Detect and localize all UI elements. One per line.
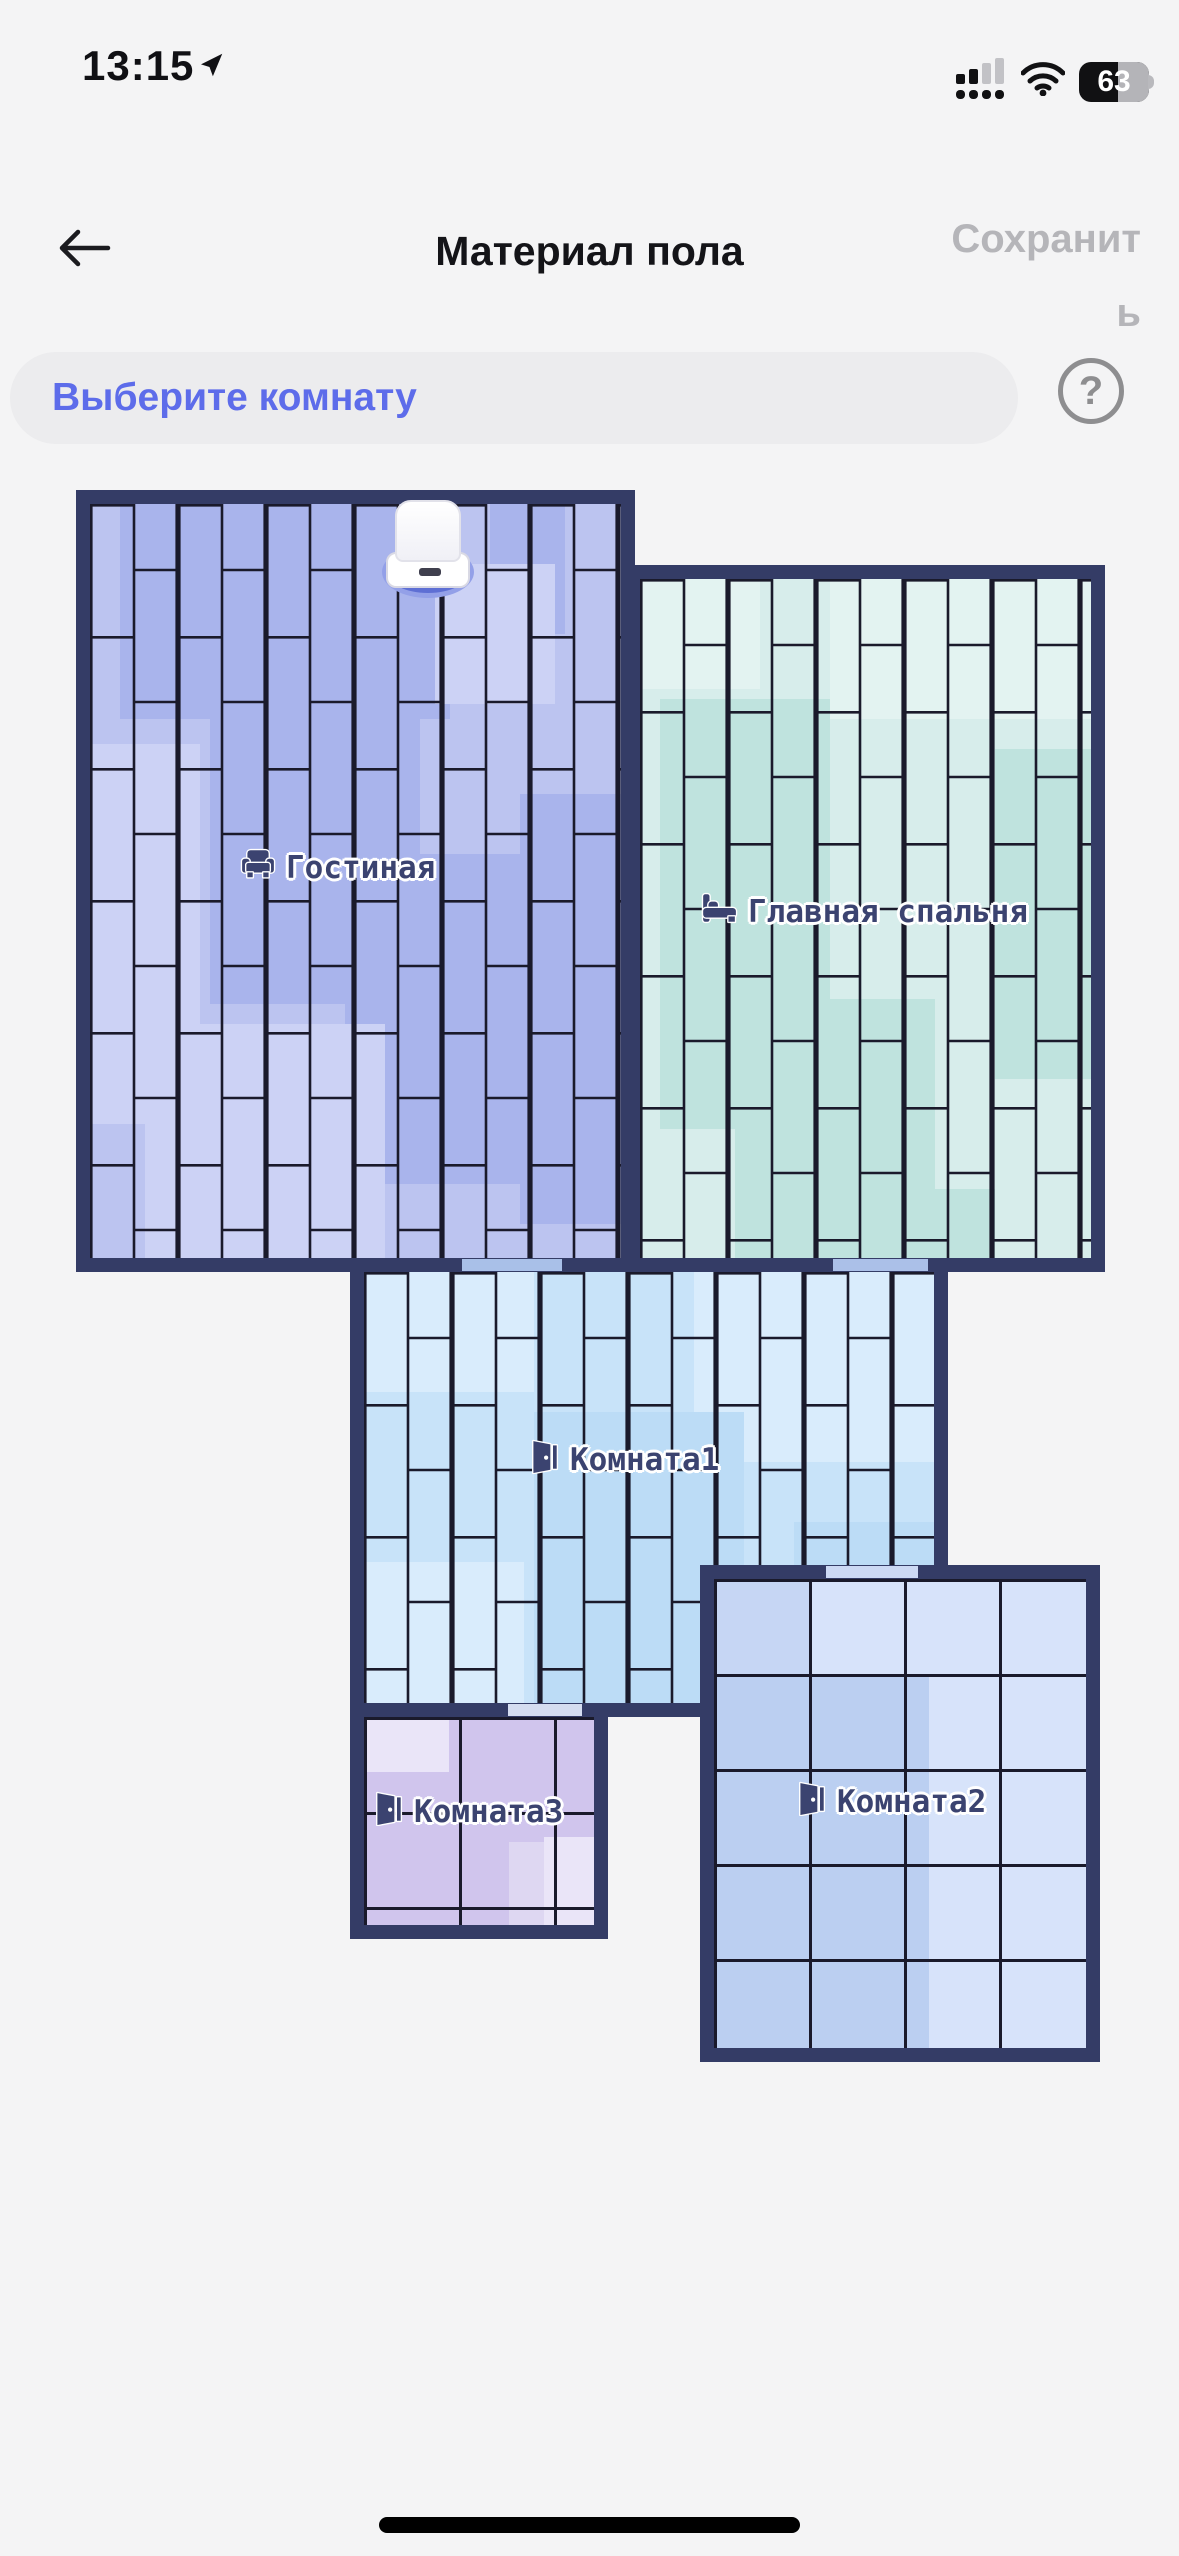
room-label-room3: Комната3	[372, 1790, 563, 1834]
door-gap	[462, 1259, 562, 1271]
dock-body	[395, 500, 461, 562]
dock-slot	[419, 568, 441, 576]
room-label-text: Главная спальня	[748, 894, 1028, 930]
room-label-text: Комната1	[570, 1442, 719, 1478]
door-gap	[508, 1704, 582, 1716]
room-label-text: Гостиная	[286, 850, 435, 886]
floor-map: Гостиная Главная спальня	[0, 0, 1179, 2150]
room-label-master-bedroom: Главная спальня	[700, 892, 1028, 932]
room-label-text: Комната2	[837, 1784, 986, 1820]
dock-station	[378, 494, 478, 604]
sofa-icon	[240, 848, 276, 888]
room-label-room1: Комната1	[528, 1438, 719, 1482]
door-icon	[372, 1790, 404, 1834]
door-gap	[826, 1566, 918, 1578]
door-gap	[833, 1259, 928, 1271]
room-label-text: Комната3	[414, 1794, 563, 1830]
screen: 13:15	[0, 0, 1179, 2556]
room-label-living: Гостиная	[240, 848, 435, 888]
door-icon	[795, 1780, 827, 1824]
home-indicator[interactable]	[379, 2517, 800, 2533]
bed-icon	[700, 892, 738, 932]
room-label-room2: Комната2	[795, 1780, 986, 1824]
door-icon	[528, 1438, 560, 1482]
